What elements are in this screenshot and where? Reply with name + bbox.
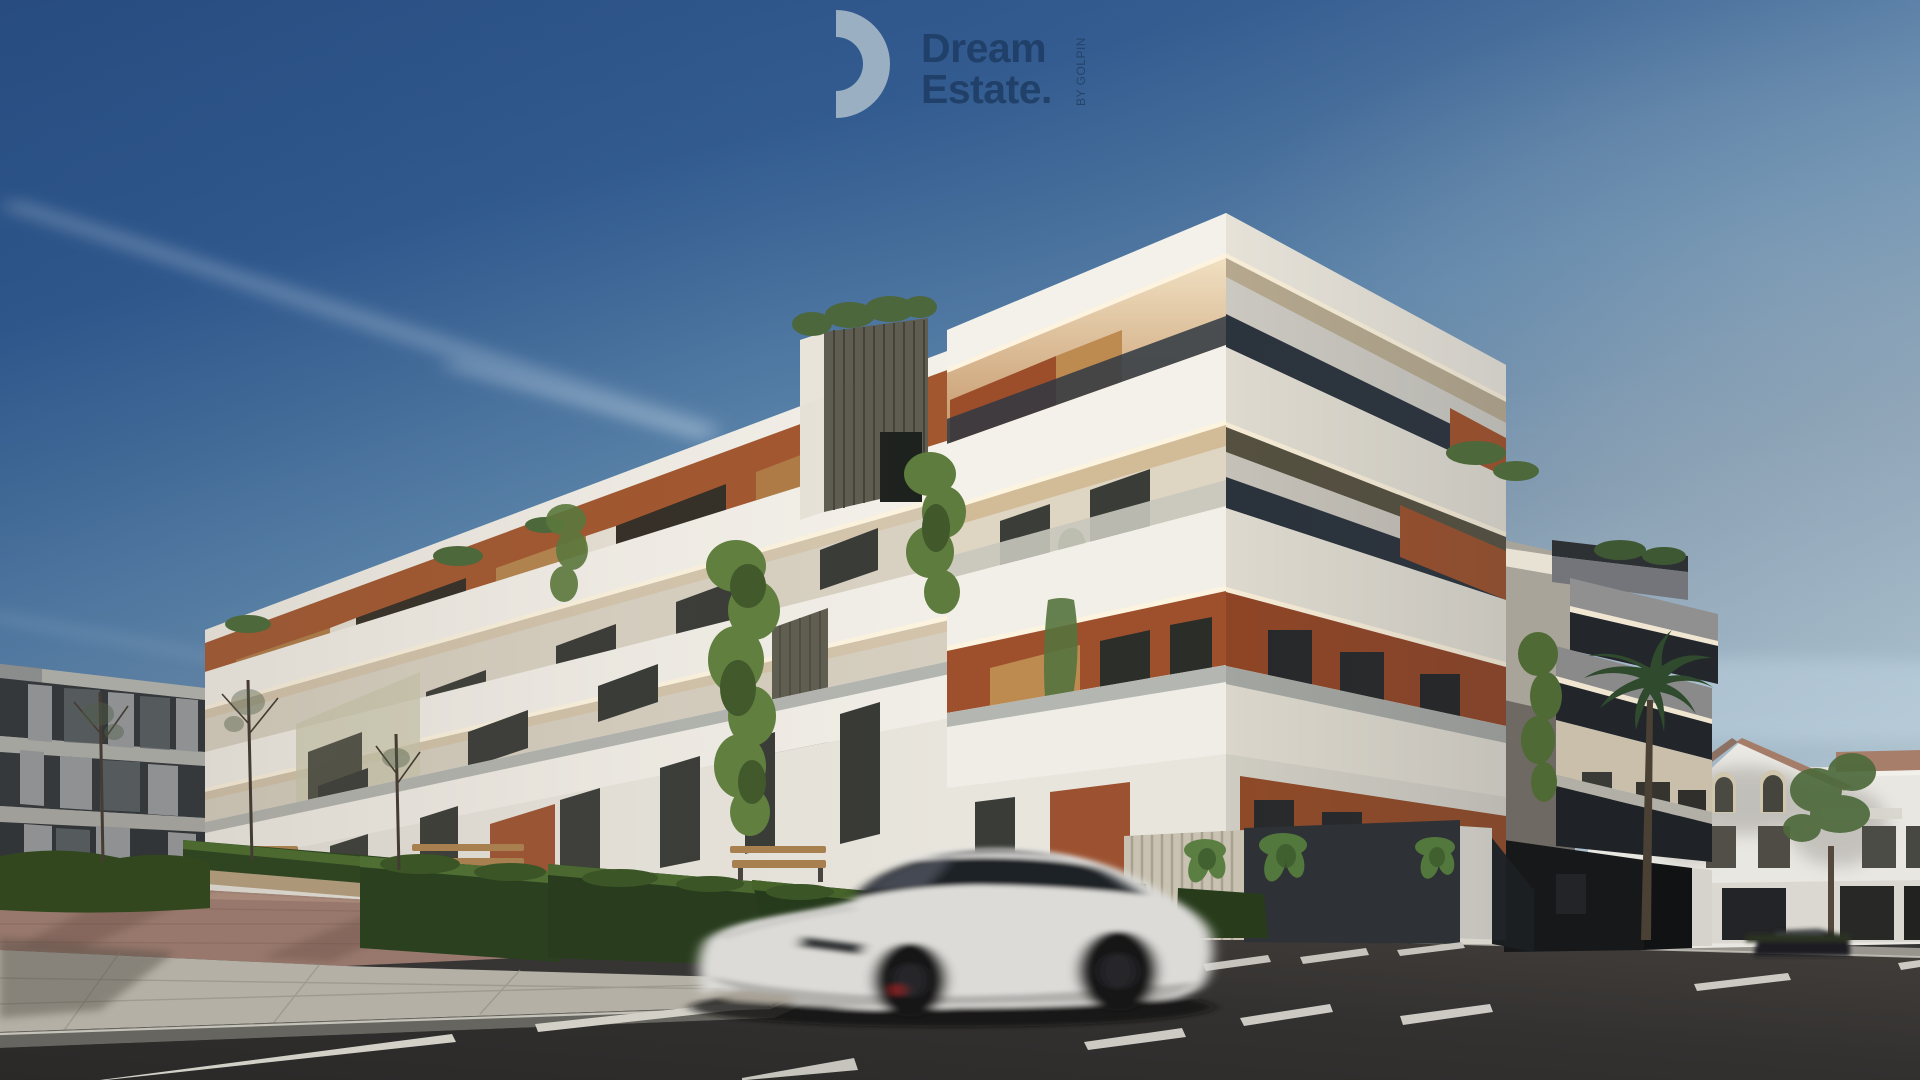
svg-text:Dream: Dream <box>921 25 1046 71</box>
svg-text:Estate.: Estate. <box>921 66 1052 112</box>
svg-text:BY GOLPIN: BY GOLPIN <box>1074 37 1088 106</box>
